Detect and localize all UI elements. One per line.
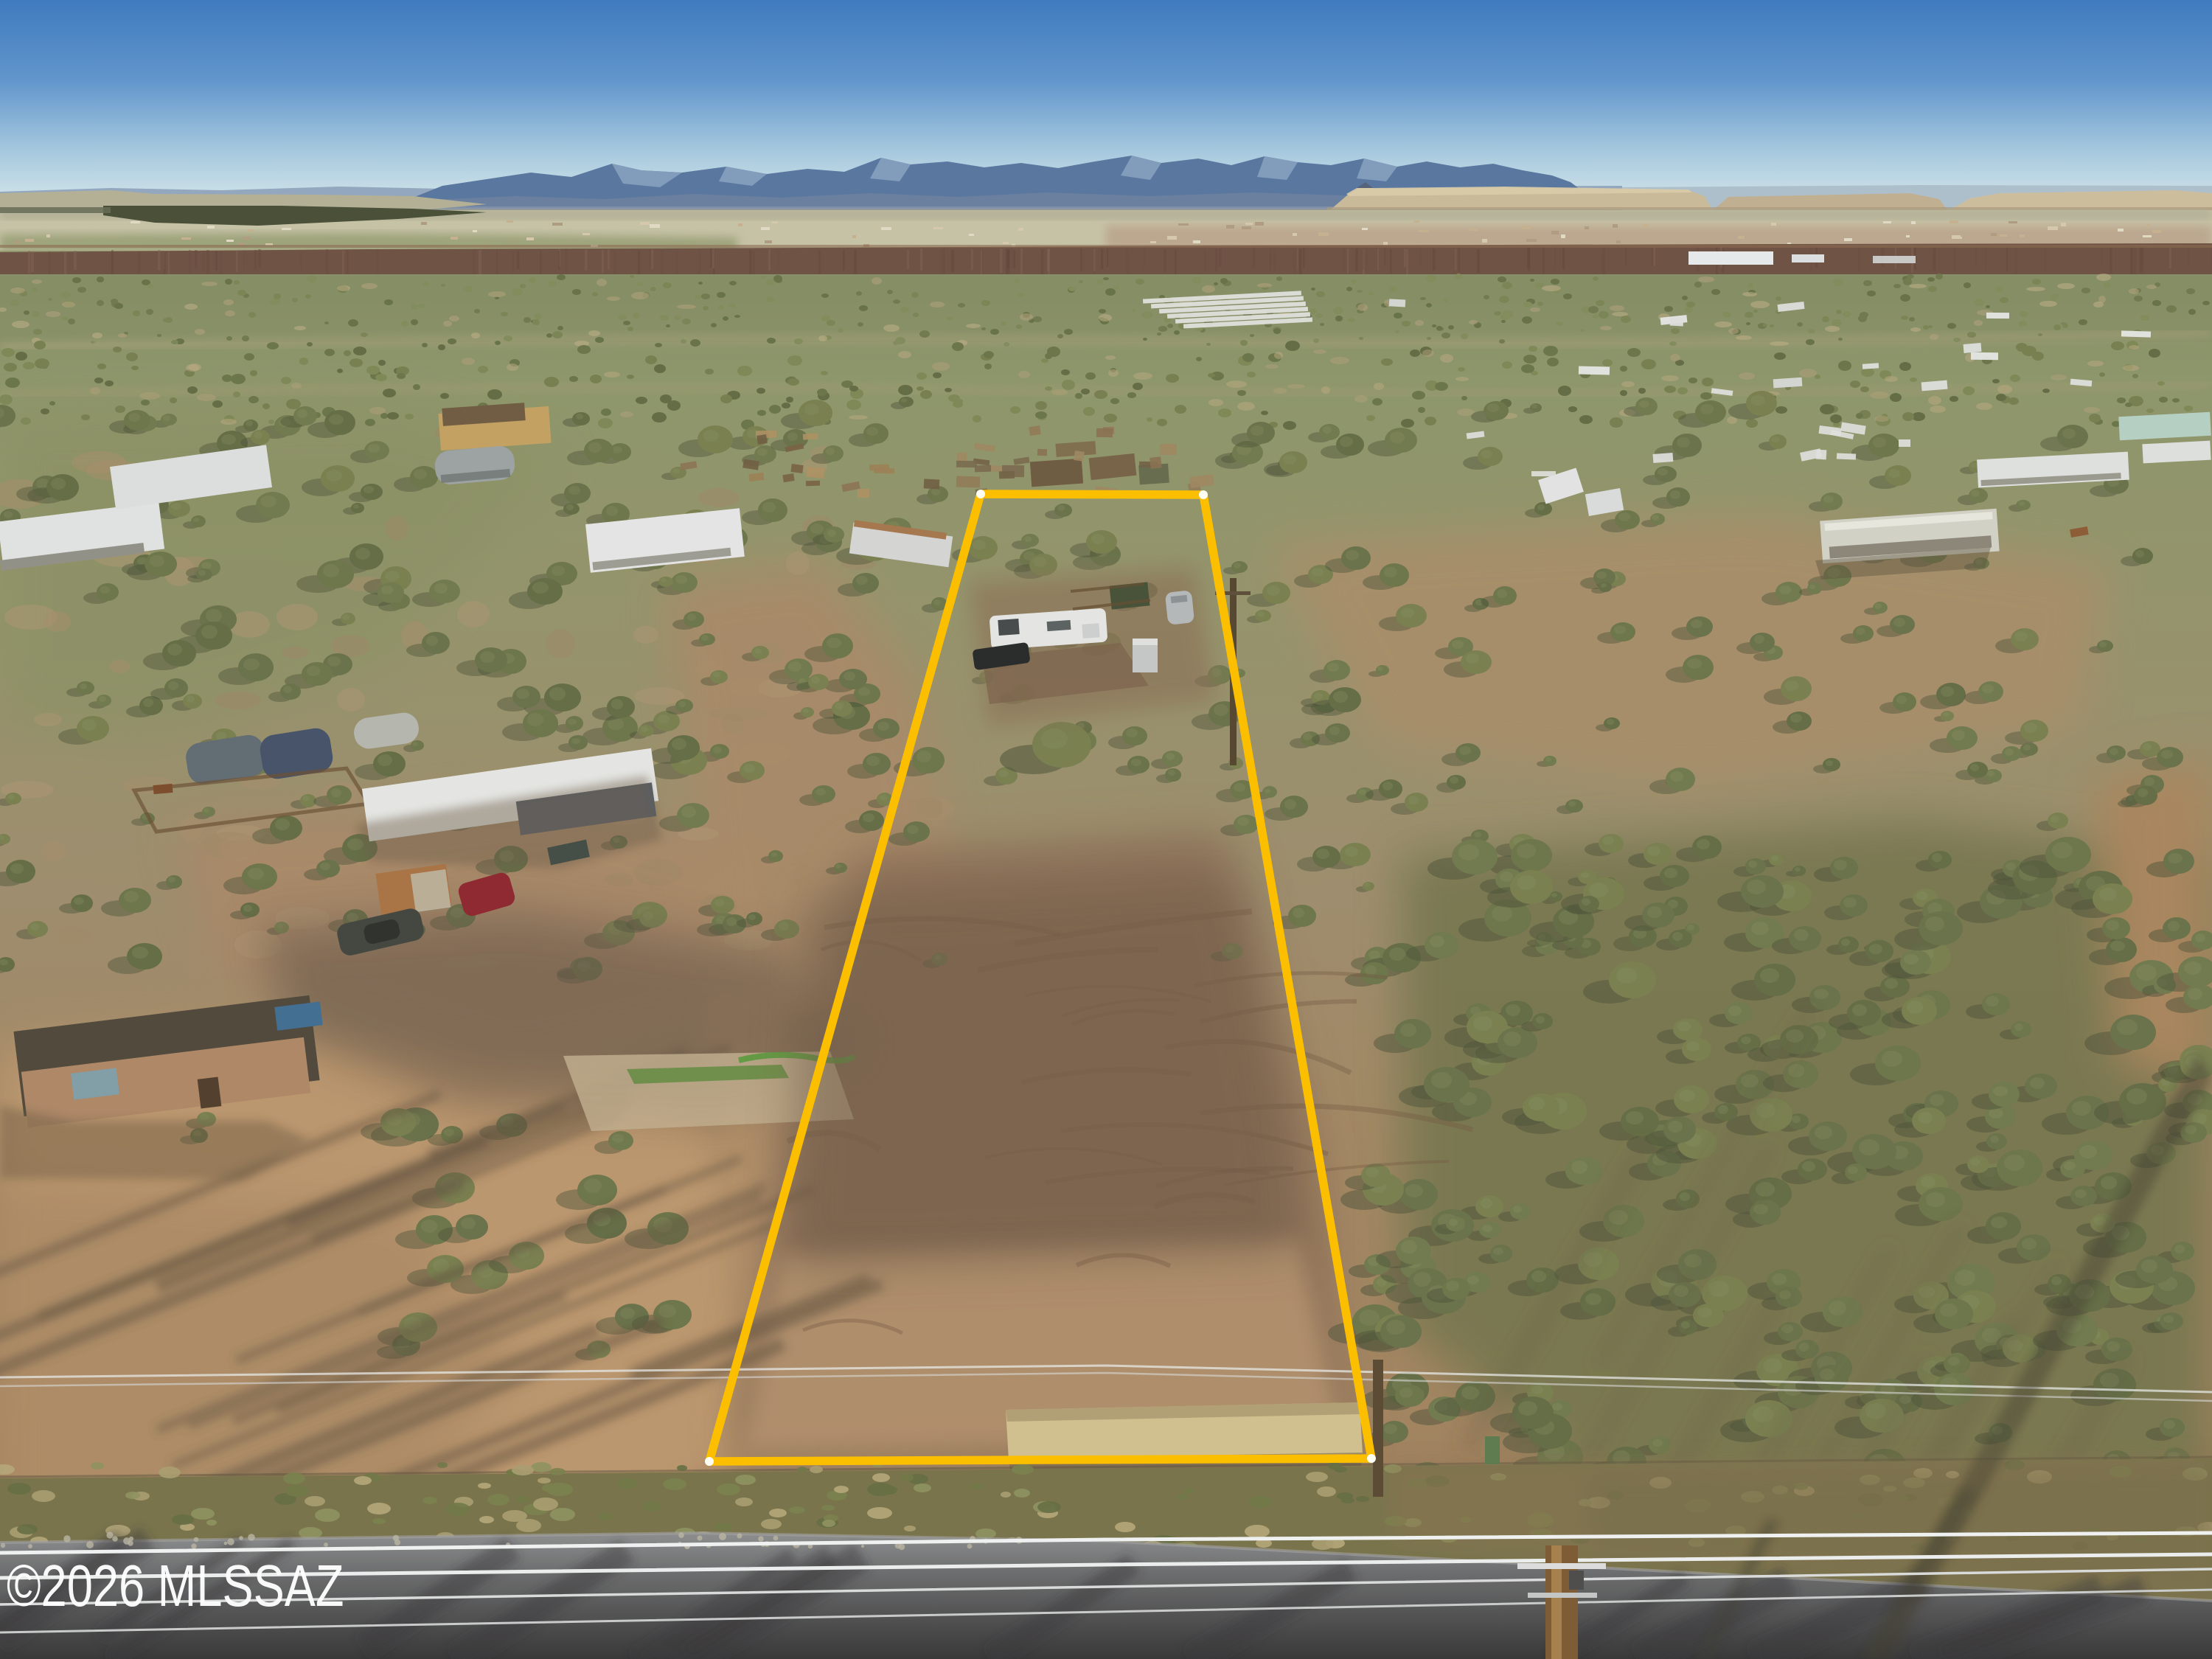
svg-text:©2026 MLSSAZ: ©2026 MLSSAZ	[7, 1554, 344, 1619]
